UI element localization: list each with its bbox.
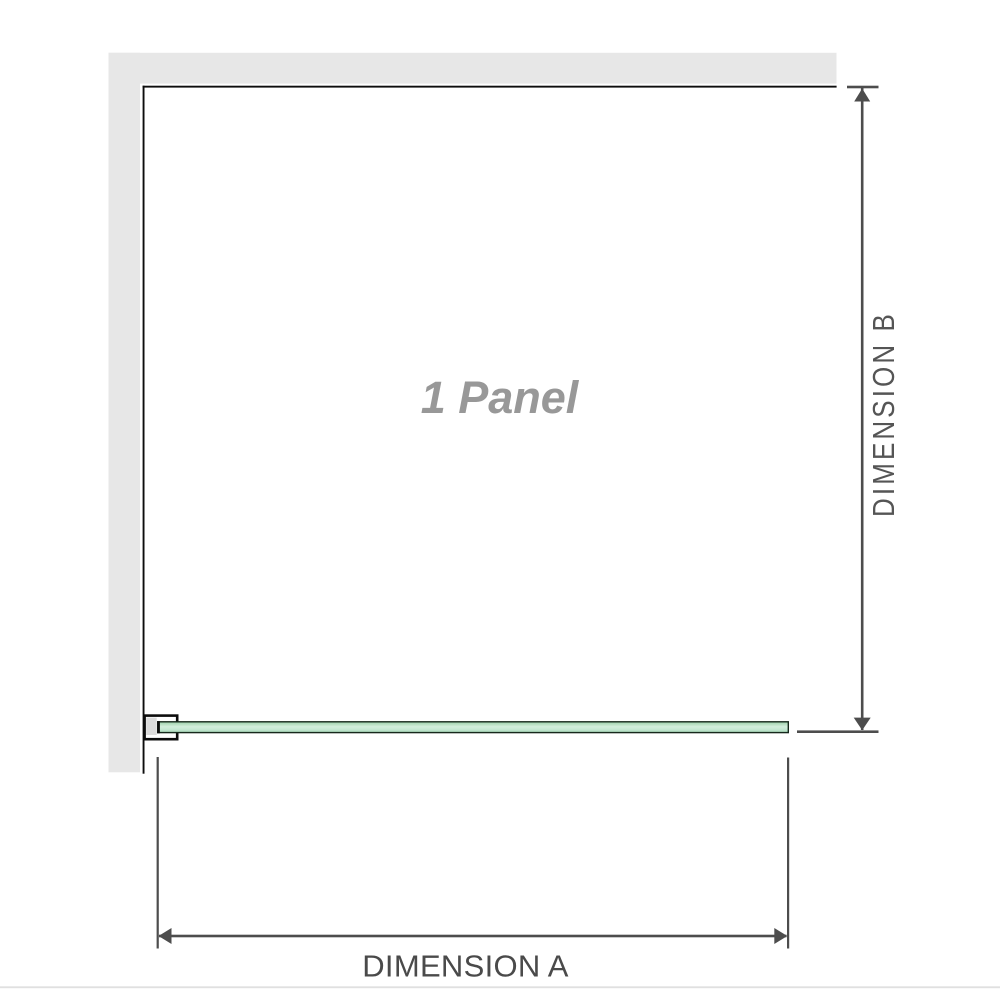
svg-text:DIMENSION A: DIMENSION A (362, 949, 569, 984)
svg-text:1 Panel: 1 Panel (421, 372, 580, 423)
svg-text:DIMENSION B: DIMENSION B (867, 311, 900, 517)
